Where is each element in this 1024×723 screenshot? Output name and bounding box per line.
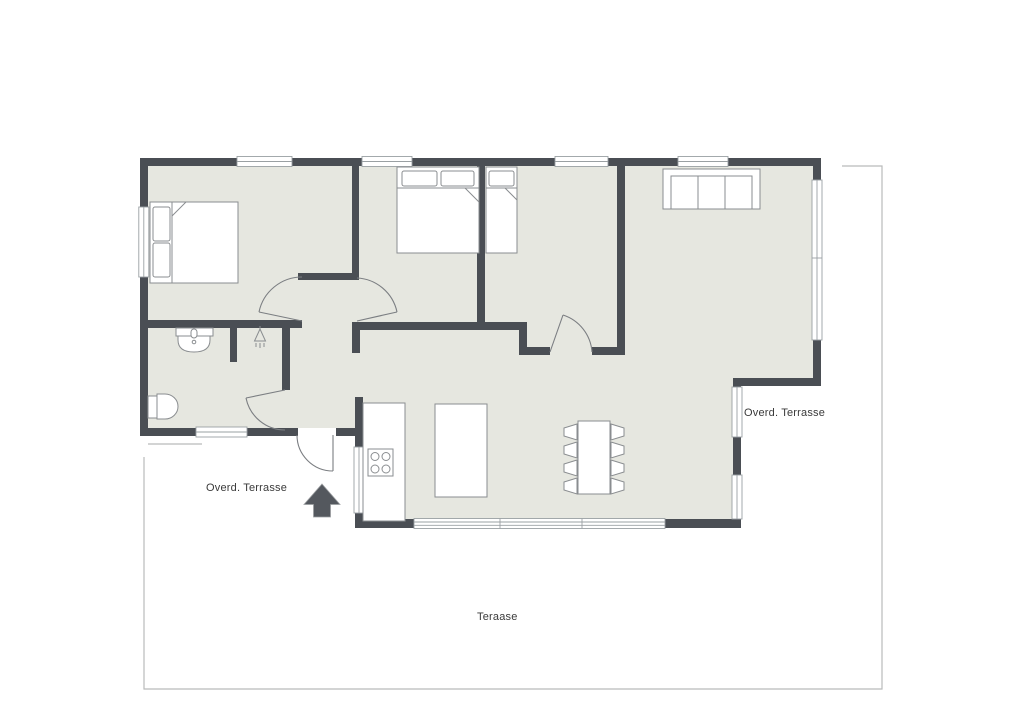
floor-plan-canvas: Overd. Terrasse Overd. Terrasse Teraase (0, 0, 1024, 723)
window (196, 427, 247, 437)
wall-bathroom-right (282, 328, 290, 390)
single-bed-icon (486, 167, 517, 253)
wall-hall-stub (352, 330, 360, 353)
stove-icon (368, 449, 393, 476)
window (732, 475, 742, 519)
window (362, 157, 412, 167)
wall-left (140, 158, 148, 436)
wall-bedroom1-right (352, 166, 359, 280)
wall-vestibule-top (298, 273, 359, 280)
wall-hall-top (352, 322, 527, 330)
sink-icon (176, 328, 213, 352)
window (555, 157, 608, 167)
wall-living-left (617, 166, 625, 355)
wall-step (733, 378, 821, 386)
wall-bathroom-stub (230, 328, 237, 362)
wall-bedroom3-bottom-a (519, 347, 550, 355)
window (732, 387, 742, 437)
wall-bathroom-top (144, 320, 302, 328)
kitchen-island-icon (435, 404, 487, 497)
double-bed-icon (150, 202, 238, 283)
door-swing-entry (297, 435, 333, 471)
floor-plan-page: Overd. Terrasse Overd. Terrasse Teraase (0, 0, 1024, 723)
toilet-icon (148, 394, 178, 419)
sofa-icon (663, 169, 760, 209)
window (237, 157, 292, 167)
window (139, 207, 149, 277)
terrace-bottom-label: Teraase (477, 611, 518, 623)
window (678, 157, 728, 167)
wall-bottom-left-b (247, 428, 298, 436)
window (414, 519, 665, 529)
double-bed-icon (397, 167, 479, 253)
window (812, 180, 822, 340)
entrance-arrow-icon (304, 484, 340, 517)
wall-bottom-left-a (140, 428, 198, 436)
terrace-right-label: Overd. Terrasse (744, 407, 825, 419)
terrace-left-label: Overd. Terrasse (206, 482, 287, 494)
